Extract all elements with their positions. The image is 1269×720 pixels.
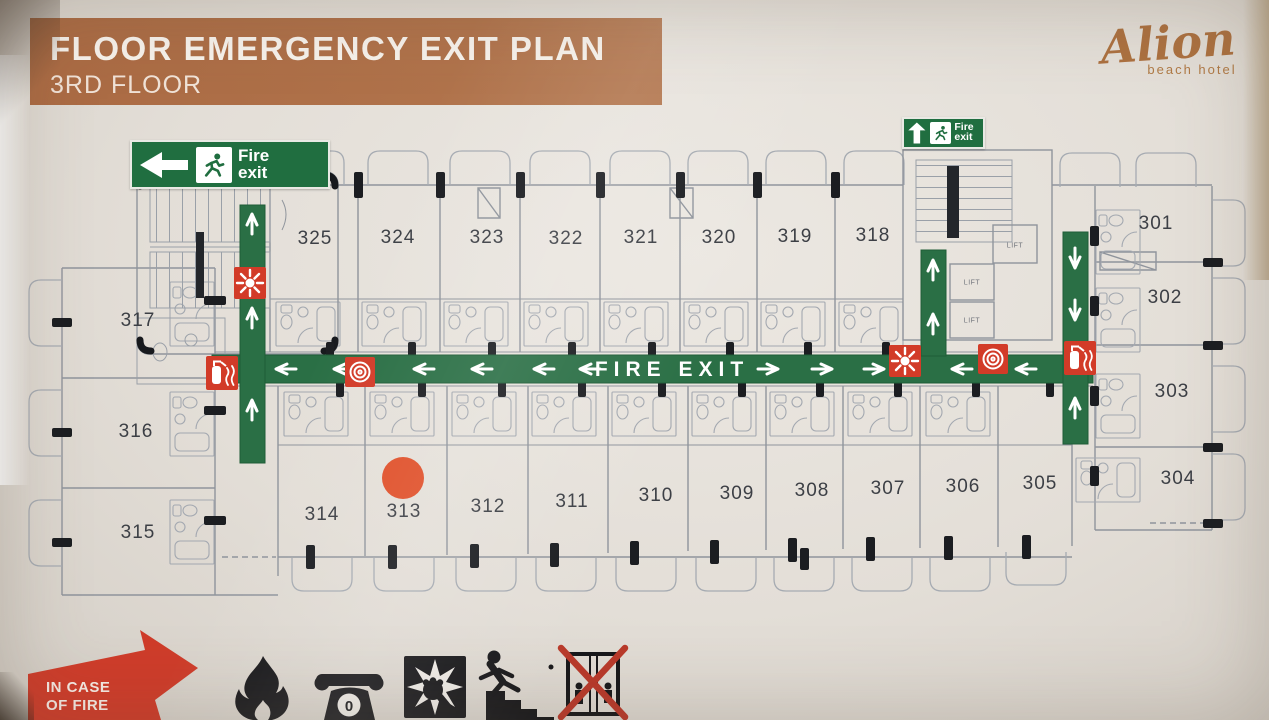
exit-arrow-up-icon bbox=[907, 121, 927, 145]
room-label-304: 304 bbox=[1161, 468, 1196, 490]
corridor-label: FIRE EXIT bbox=[595, 358, 749, 381]
room-label-316: 316 bbox=[119, 421, 154, 443]
fire-exit-sign-left: Fire exit bbox=[130, 140, 330, 189]
running-man-icon bbox=[930, 122, 952, 144]
fire-extinguisher-icon bbox=[206, 356, 238, 390]
lift-label: LIFT bbox=[1007, 243, 1023, 250]
lift-label: LIFT bbox=[964, 318, 980, 325]
legend-icons: 0 bbox=[28, 630, 625, 720]
break-glass-icon bbox=[404, 656, 466, 718]
hotel-logo-name: Alion bbox=[1077, 14, 1260, 72]
emergency-plan-photo: FIRE EXIT 0 bbox=[0, 0, 1269, 720]
room-label-313: 313 bbox=[387, 501, 422, 523]
room-label-302: 302 bbox=[1148, 287, 1183, 309]
title-banner: FLOOR EMERGENCY EXIT PLAN 3RD FLOOR bbox=[30, 18, 662, 105]
room-label-312: 312 bbox=[471, 496, 506, 518]
room-label-322: 322 bbox=[549, 228, 584, 250]
room-label-325: 325 bbox=[298, 228, 333, 250]
room-label-314: 314 bbox=[305, 504, 340, 526]
fire-hose-reel-icon bbox=[978, 344, 1008, 374]
banner-line-2: OF FIRE bbox=[46, 697, 110, 715]
room-label-303: 303 bbox=[1155, 381, 1190, 403]
room-label-320: 320 bbox=[702, 227, 737, 249]
fire-flame-icon bbox=[235, 656, 288, 720]
room-label-309: 309 bbox=[720, 483, 755, 505]
you-are-here-marker bbox=[382, 457, 424, 499]
banner-line-1: IN CASE bbox=[46, 679, 110, 697]
plan-title: FLOOR EMERGENCY EXIT PLAN bbox=[50, 30, 662, 68]
floor-plan-drawing: FIRE EXIT 0 bbox=[0, 0, 1269, 720]
room-label-315: 315 bbox=[121, 522, 156, 544]
room-label-318: 318 bbox=[856, 225, 891, 247]
room-label-306: 306 bbox=[946, 476, 981, 498]
room-label-311: 311 bbox=[555, 491, 588, 513]
plan-subtitle: 3RD FLOOR bbox=[50, 71, 662, 100]
svg-text:0: 0 bbox=[345, 698, 353, 715]
room-label-301: 301 bbox=[1139, 213, 1174, 235]
room-label-321: 321 bbox=[624, 227, 659, 249]
fire-alarm-icon bbox=[889, 345, 921, 377]
fire-exit-sign-label: Fire exit bbox=[954, 123, 980, 143]
no-lift-icon bbox=[561, 648, 625, 717]
room-label-305: 305 bbox=[1023, 473, 1058, 495]
fire-extinguisher-icon bbox=[1064, 341, 1096, 375]
telephone-icon: 0 bbox=[315, 674, 384, 720]
room-label-319: 319 bbox=[778, 226, 813, 248]
lift-label: LIFT bbox=[964, 280, 980, 287]
room-label-308: 308 bbox=[795, 480, 830, 502]
fire-exit-sign-top: Fire exit bbox=[902, 117, 985, 149]
room-label-317: 317 bbox=[121, 310, 156, 332]
in-case-of-fire-banner: IN CASE OF FIRE bbox=[46, 679, 110, 715]
room-label-307: 307 bbox=[871, 478, 906, 500]
run-downstairs-icon bbox=[481, 651, 554, 720]
fire-alarm-icon bbox=[234, 267, 266, 299]
fire-hose-reel-icon bbox=[345, 357, 375, 387]
running-man-icon bbox=[196, 147, 232, 183]
room-label-310: 310 bbox=[639, 485, 674, 507]
fire-exit-sign-label: Fire exit bbox=[238, 148, 284, 180]
room-label-324: 324 bbox=[381, 227, 416, 249]
red-cross-mark bbox=[561, 648, 625, 717]
exit-arrow-left-icon bbox=[138, 150, 190, 180]
room-label-323: 323 bbox=[470, 227, 505, 249]
hotel-logo: Alion beach hotel bbox=[1078, 20, 1258, 77]
